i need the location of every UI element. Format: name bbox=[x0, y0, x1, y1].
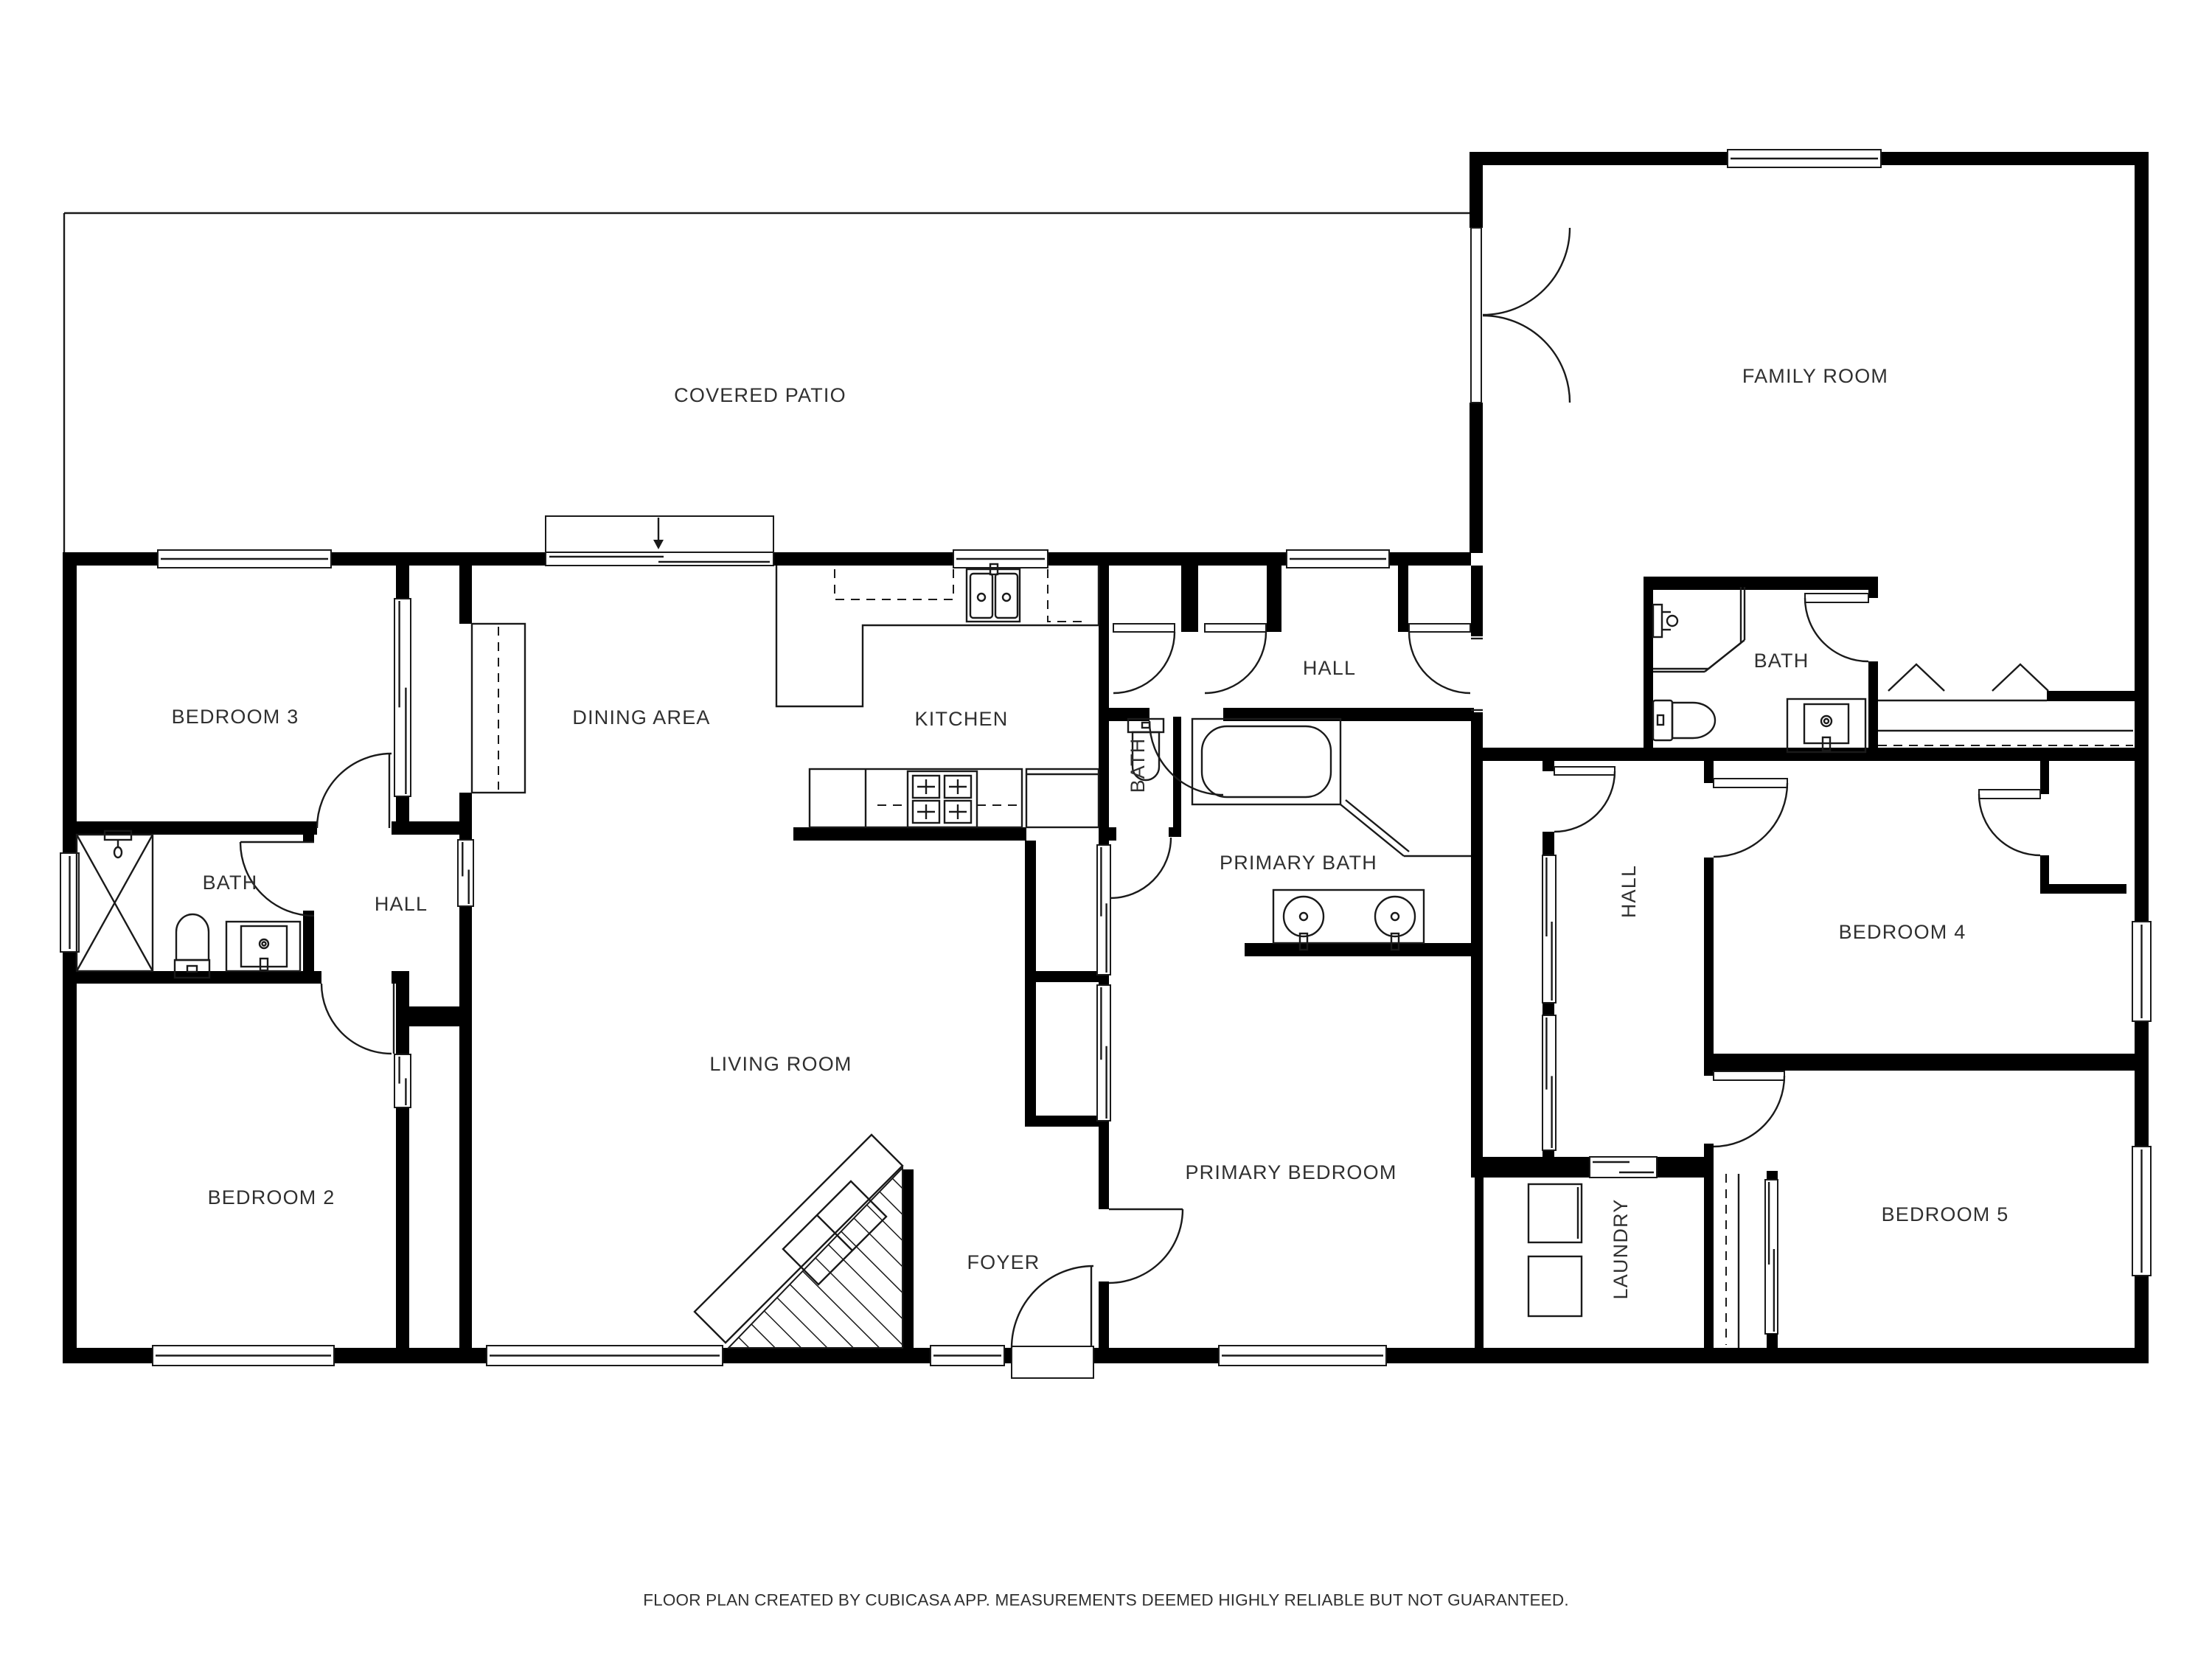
svg-text:PRIMARY BEDROOM: PRIMARY BEDROOM bbox=[1185, 1161, 1397, 1183]
svg-text:LIVING ROOM: LIVING ROOM bbox=[709, 1053, 852, 1075]
svg-text:BEDROOM 4: BEDROOM 4 bbox=[1839, 921, 1966, 943]
svg-text:FLOOR PLAN CREATED BY CUBICASA: FLOOR PLAN CREATED BY CUBICASA APP. MEAS… bbox=[643, 1591, 1569, 1610]
svg-text:HALL: HALL bbox=[1303, 657, 1356, 679]
svg-text:HALL: HALL bbox=[375, 893, 428, 915]
svg-text:FAMILY ROOM: FAMILY ROOM bbox=[1742, 365, 1888, 387]
svg-text:LAUNDRY: LAUNDRY bbox=[1610, 1199, 1632, 1300]
svg-text:KITCHEN: KITCHEN bbox=[915, 708, 1009, 730]
svg-text:BATH: BATH bbox=[1127, 738, 1149, 793]
svg-text:BEDROOM 5: BEDROOM 5 bbox=[1882, 1203, 2009, 1225]
svg-text:HALL: HALL bbox=[1618, 865, 1640, 918]
svg-text:BATH: BATH bbox=[1754, 650, 1809, 672]
svg-text:BEDROOM 3: BEDROOM 3 bbox=[172, 706, 299, 728]
svg-text:BEDROOM 2: BEDROOM 2 bbox=[208, 1186, 335, 1208]
svg-text:PRIMARY BATH: PRIMARY BATH bbox=[1220, 852, 1377, 874]
svg-text:BATH: BATH bbox=[203, 872, 258, 894]
svg-text:FOYER: FOYER bbox=[967, 1251, 1040, 1273]
svg-text:DINING AREA: DINING AREA bbox=[572, 706, 710, 728]
svg-text:COVERED PATIO: COVERED PATIO bbox=[674, 384, 846, 406]
